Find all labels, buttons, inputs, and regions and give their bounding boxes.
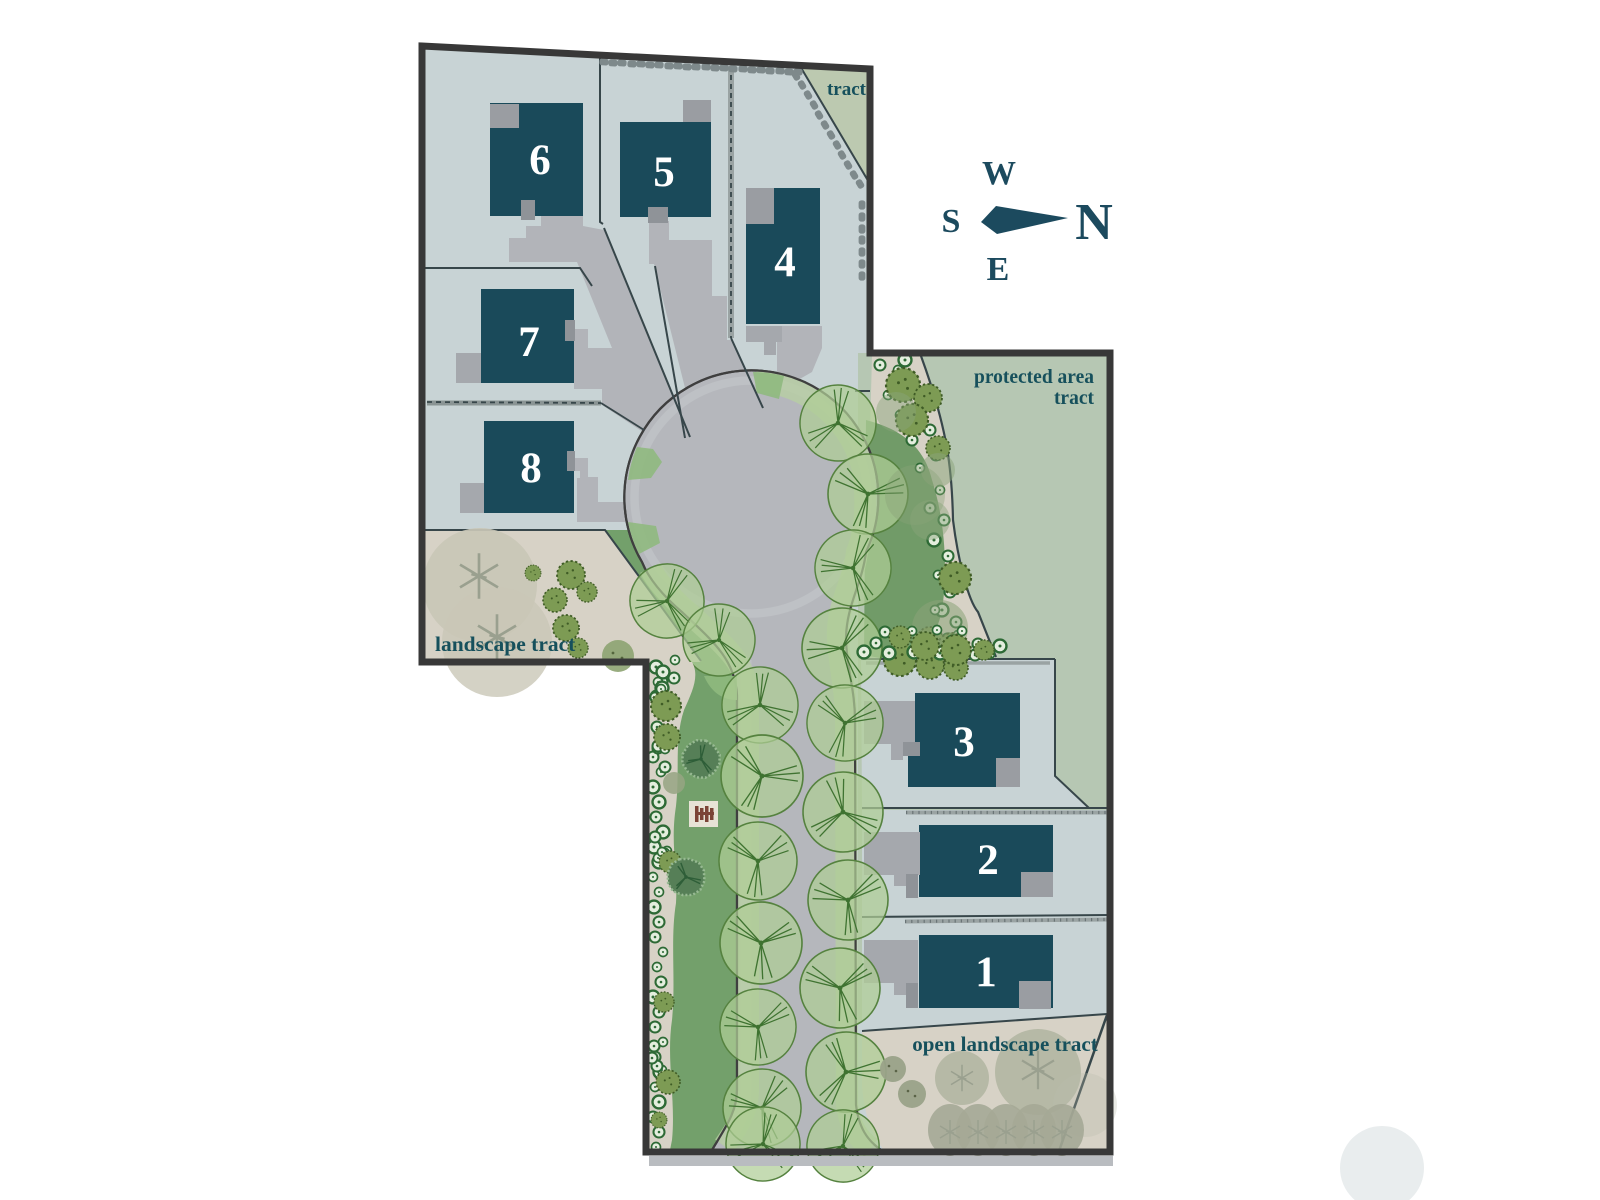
svg-text:W: W [982,155,1016,192]
svg-text:7: 7 [518,319,540,366]
svg-text:N: N [1075,194,1113,251]
svg-text:protected area: protected area [974,367,1094,388]
svg-text:landscape tract: landscape tract [435,632,576,656]
svg-text:tract: tract [1054,388,1095,409]
svg-text:E: E [987,251,1010,288]
svg-text:6: 6 [529,137,551,184]
svg-text:S: S [942,203,961,240]
svg-text:1: 1 [975,949,997,996]
svg-text:5: 5 [653,149,675,196]
svg-text:open landscape tract: open landscape tract [912,1032,1098,1056]
svg-text:3: 3 [953,719,975,766]
svg-text:8: 8 [520,445,542,492]
svg-text:tract: tract [827,79,867,100]
svg-text:2: 2 [977,837,999,884]
svg-text:4: 4 [774,239,796,286]
